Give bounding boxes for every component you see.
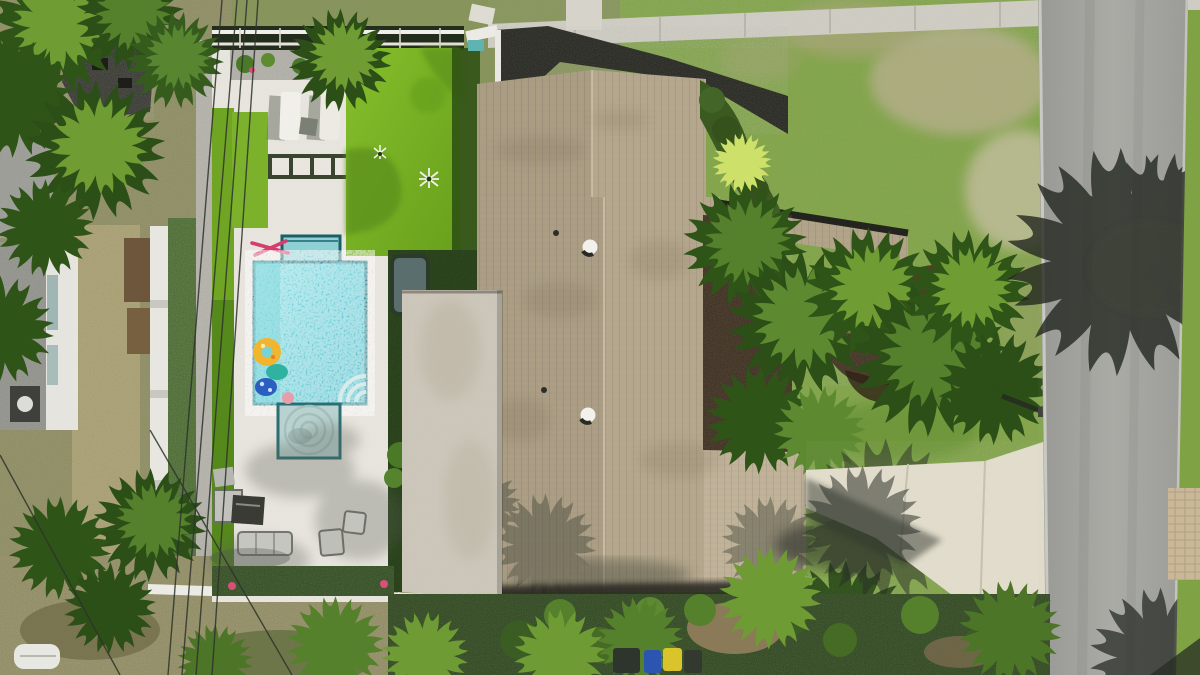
blue-float xyxy=(255,378,277,396)
bin-dark xyxy=(613,648,640,673)
paver-driveway xyxy=(1168,488,1200,580)
aerial-photo xyxy=(0,0,1200,675)
chair xyxy=(319,529,344,556)
coffee-table xyxy=(231,495,265,525)
side-table xyxy=(299,117,318,136)
pink-flower xyxy=(249,67,255,73)
bin-blue xyxy=(644,650,661,673)
waste-bins xyxy=(613,648,702,673)
pink-flower xyxy=(380,580,388,588)
pink-ball xyxy=(282,392,294,404)
shrub xyxy=(384,468,404,488)
pink-flower xyxy=(228,582,236,590)
stepping-pads xyxy=(270,156,354,177)
walkway-stub xyxy=(566,0,602,30)
pool-equipment xyxy=(468,40,484,51)
scene-svg xyxy=(0,0,1200,675)
patio-roof xyxy=(398,290,514,633)
chair xyxy=(343,511,366,534)
garden-bed xyxy=(127,308,154,354)
bin-yellow xyxy=(663,648,682,671)
teal-float xyxy=(266,364,288,380)
bin-dark xyxy=(684,650,702,673)
